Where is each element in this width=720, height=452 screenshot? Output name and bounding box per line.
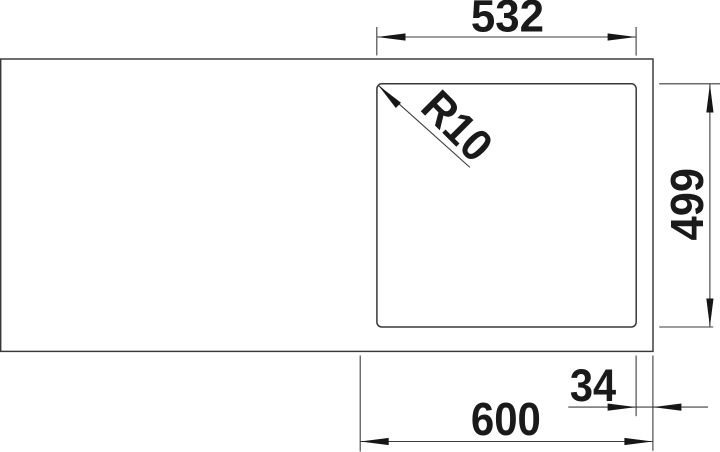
svg-text:499: 499 [661, 168, 713, 241]
svg-text:532: 532 [471, 0, 544, 41]
svg-text:600: 600 [471, 393, 541, 445]
svg-text:34: 34 [570, 360, 616, 411]
